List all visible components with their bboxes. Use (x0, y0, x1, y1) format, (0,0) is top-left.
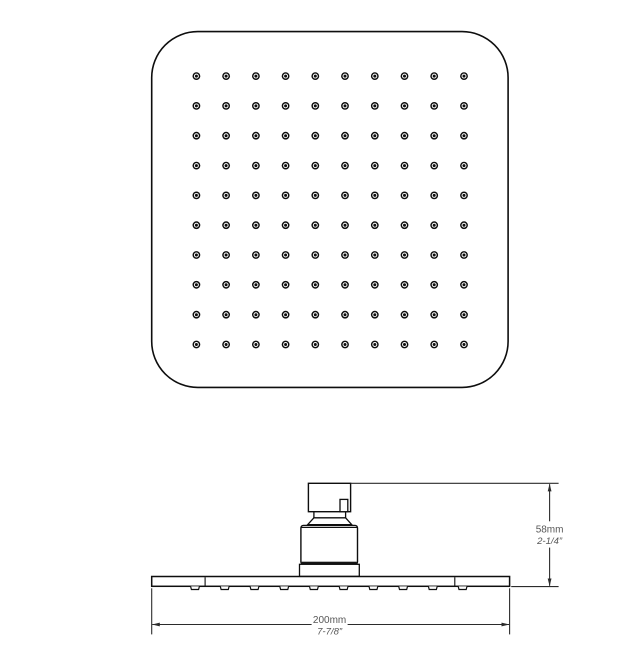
svg-text:200mm: 200mm (313, 615, 346, 626)
svg-text:2-1/4”: 2-1/4” (536, 536, 563, 547)
svg-text:58mm: 58mm (536, 525, 564, 536)
svg-text:7-7/8”: 7-7/8” (317, 627, 343, 638)
